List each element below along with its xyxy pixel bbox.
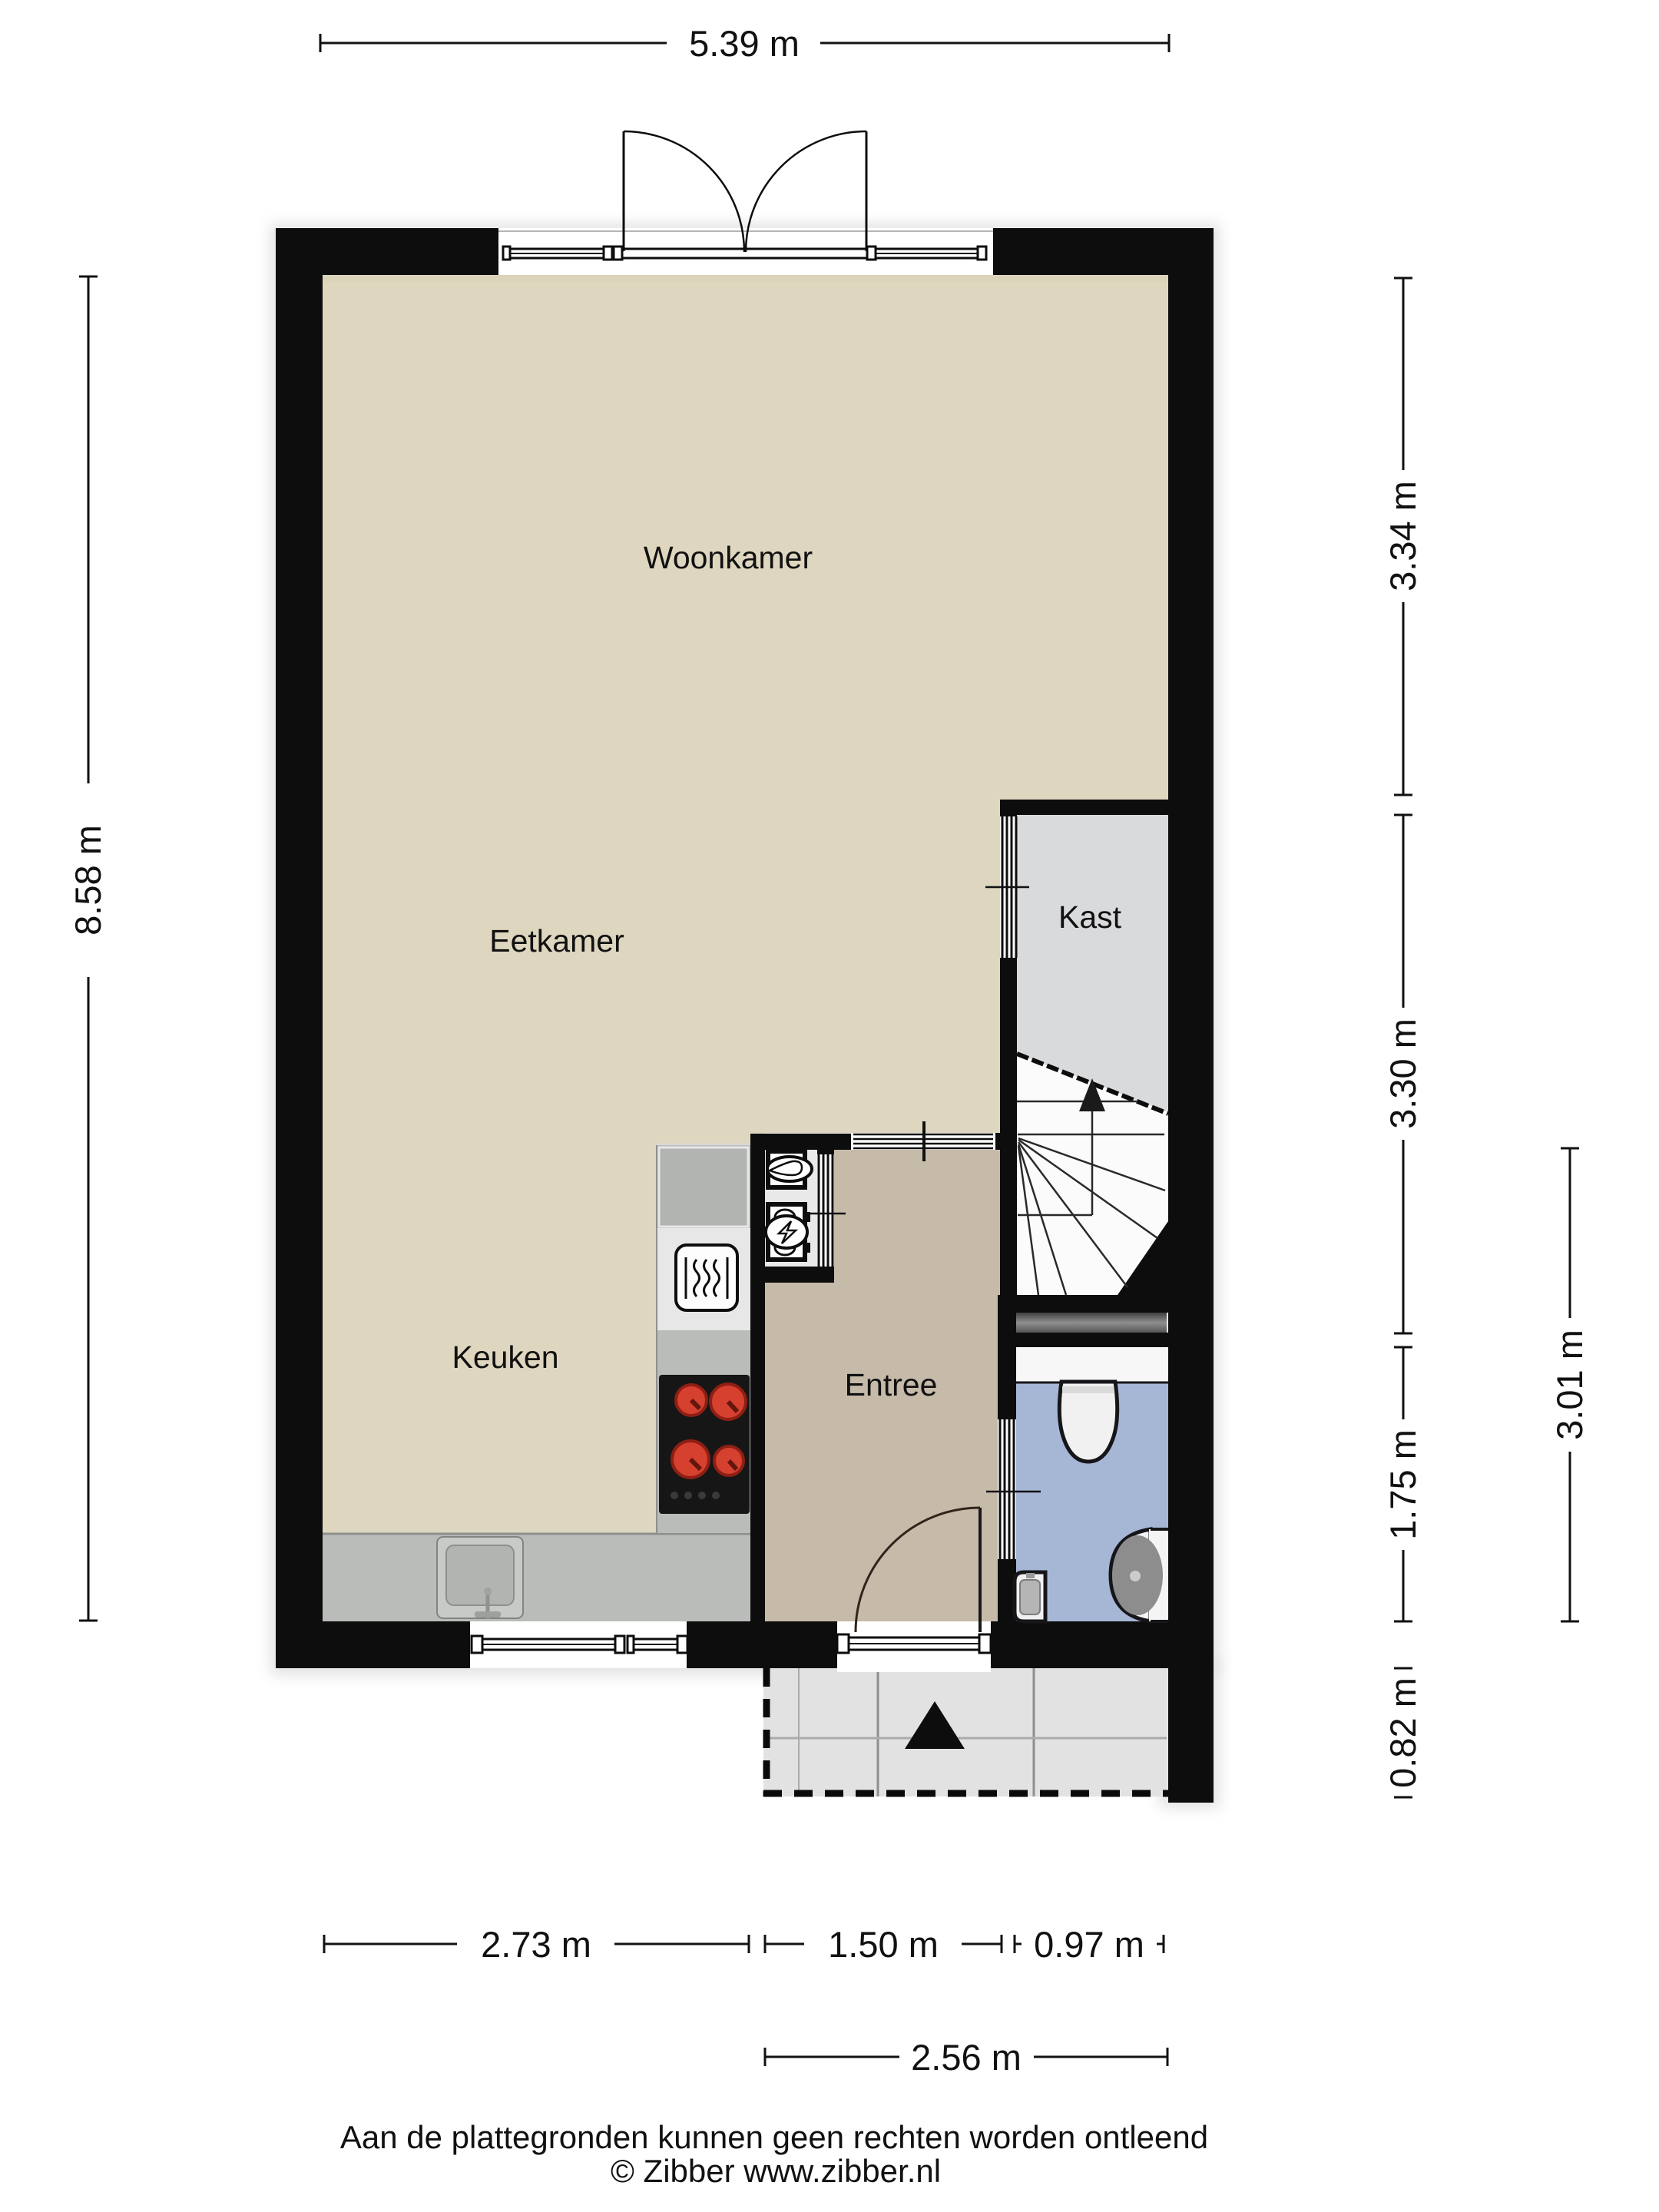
svg-text:Aan de plattegronden kunnen ge: Aan de plattegronden kunnen geen rechten… <box>340 2119 1208 2155</box>
svg-text:Keuken: Keuken <box>452 1339 558 1375</box>
svg-text:3.30 m: 3.30 m <box>1382 1018 1423 1129</box>
svg-text:1.50 m: 1.50 m <box>828 1924 939 1965</box>
svg-text:Woonkamer: Woonkamer <box>644 540 813 575</box>
svg-text:5.39 m: 5.39 m <box>689 23 800 64</box>
svg-text:2.56 m: 2.56 m <box>911 2037 1022 2078</box>
svg-text:0.97 m: 0.97 m <box>1034 1924 1144 1965</box>
svg-text:0.82 m: 0.82 m <box>1382 1677 1423 1788</box>
svg-text:3.34 m: 3.34 m <box>1382 481 1423 591</box>
svg-text:Kast: Kast <box>1058 899 1122 935</box>
svg-text:© Zibber www.zibber.nl: © Zibber www.zibber.nl <box>611 2153 941 2189</box>
svg-text:Entree: Entree <box>845 1367 938 1402</box>
svg-text:1.75 m: 1.75 m <box>1382 1429 1423 1540</box>
svg-text:3.01 m: 3.01 m <box>1549 1330 1590 1440</box>
svg-text:8.58 m: 8.58 m <box>68 825 108 935</box>
svg-text:Eetkamer: Eetkamer <box>489 923 624 959</box>
svg-text:2.73 m: 2.73 m <box>481 1924 591 1965</box>
